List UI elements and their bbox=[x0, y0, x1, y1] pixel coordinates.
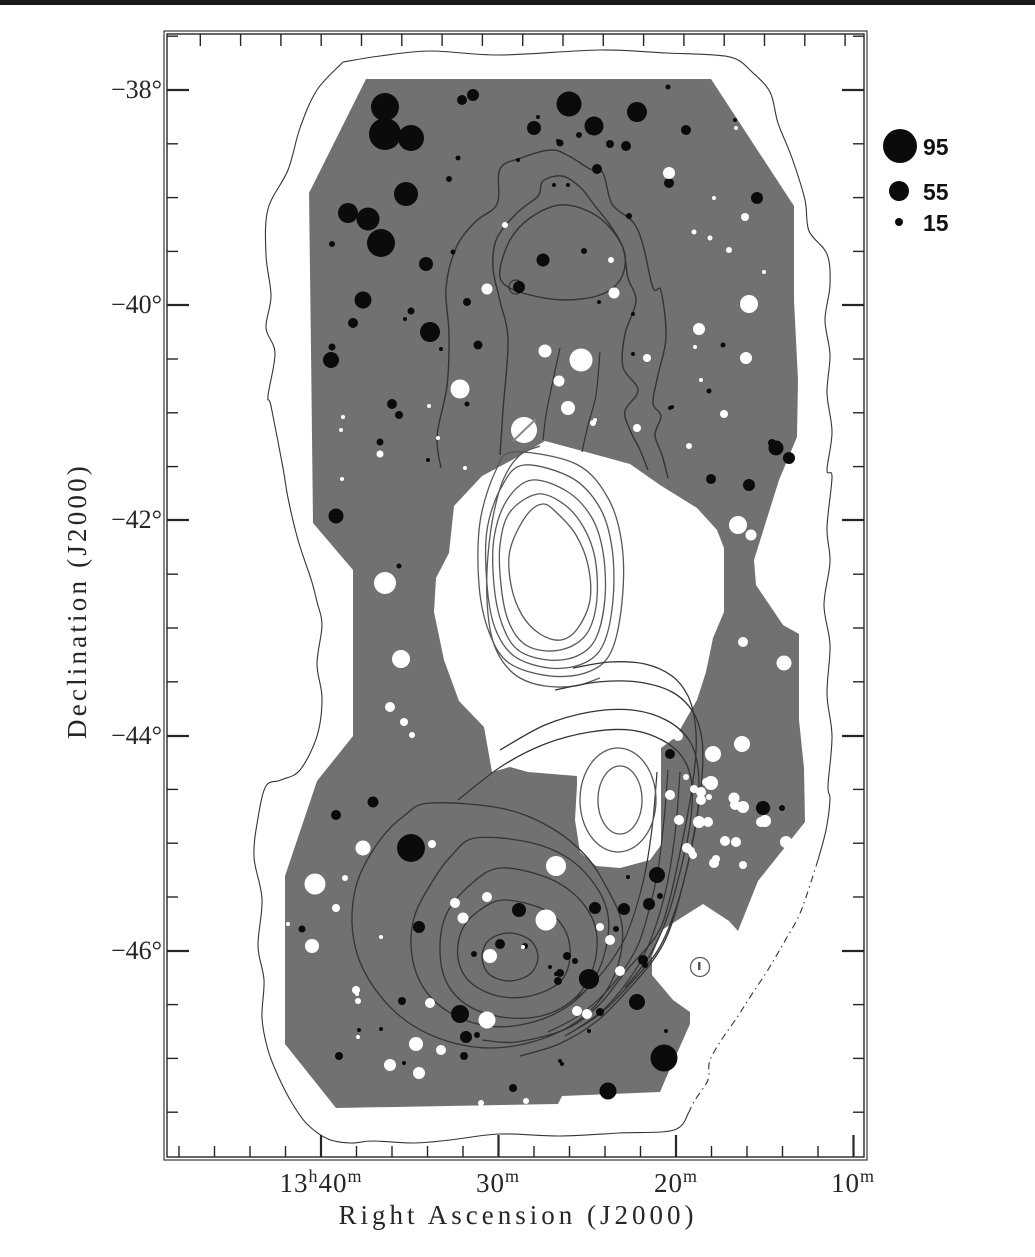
svg-text:20m: 20m bbox=[654, 1166, 698, 1198]
svg-text:−40°: −40° bbox=[111, 290, 162, 319]
svg-text:95: 95 bbox=[923, 134, 949, 160]
svg-text:−46°: −46° bbox=[111, 936, 162, 965]
svg-text:−42°: −42° bbox=[111, 505, 162, 534]
svg-text:−38°: −38° bbox=[111, 75, 162, 104]
svg-text:−44°: −44° bbox=[111, 721, 162, 750]
svg-text:55: 55 bbox=[923, 179, 949, 205]
svg-text:30m: 30m bbox=[476, 1166, 520, 1198]
svg-text:10m: 10m bbox=[831, 1166, 875, 1198]
svg-text:Right Ascension (J2000): Right Ascension (J2000) bbox=[339, 1200, 698, 1230]
svg-text:Declination (J2000): Declination (J2000) bbox=[62, 463, 92, 739]
svg-text:13h40m: 13h40m bbox=[279, 1166, 362, 1198]
svg-text:15: 15 bbox=[923, 210, 949, 236]
